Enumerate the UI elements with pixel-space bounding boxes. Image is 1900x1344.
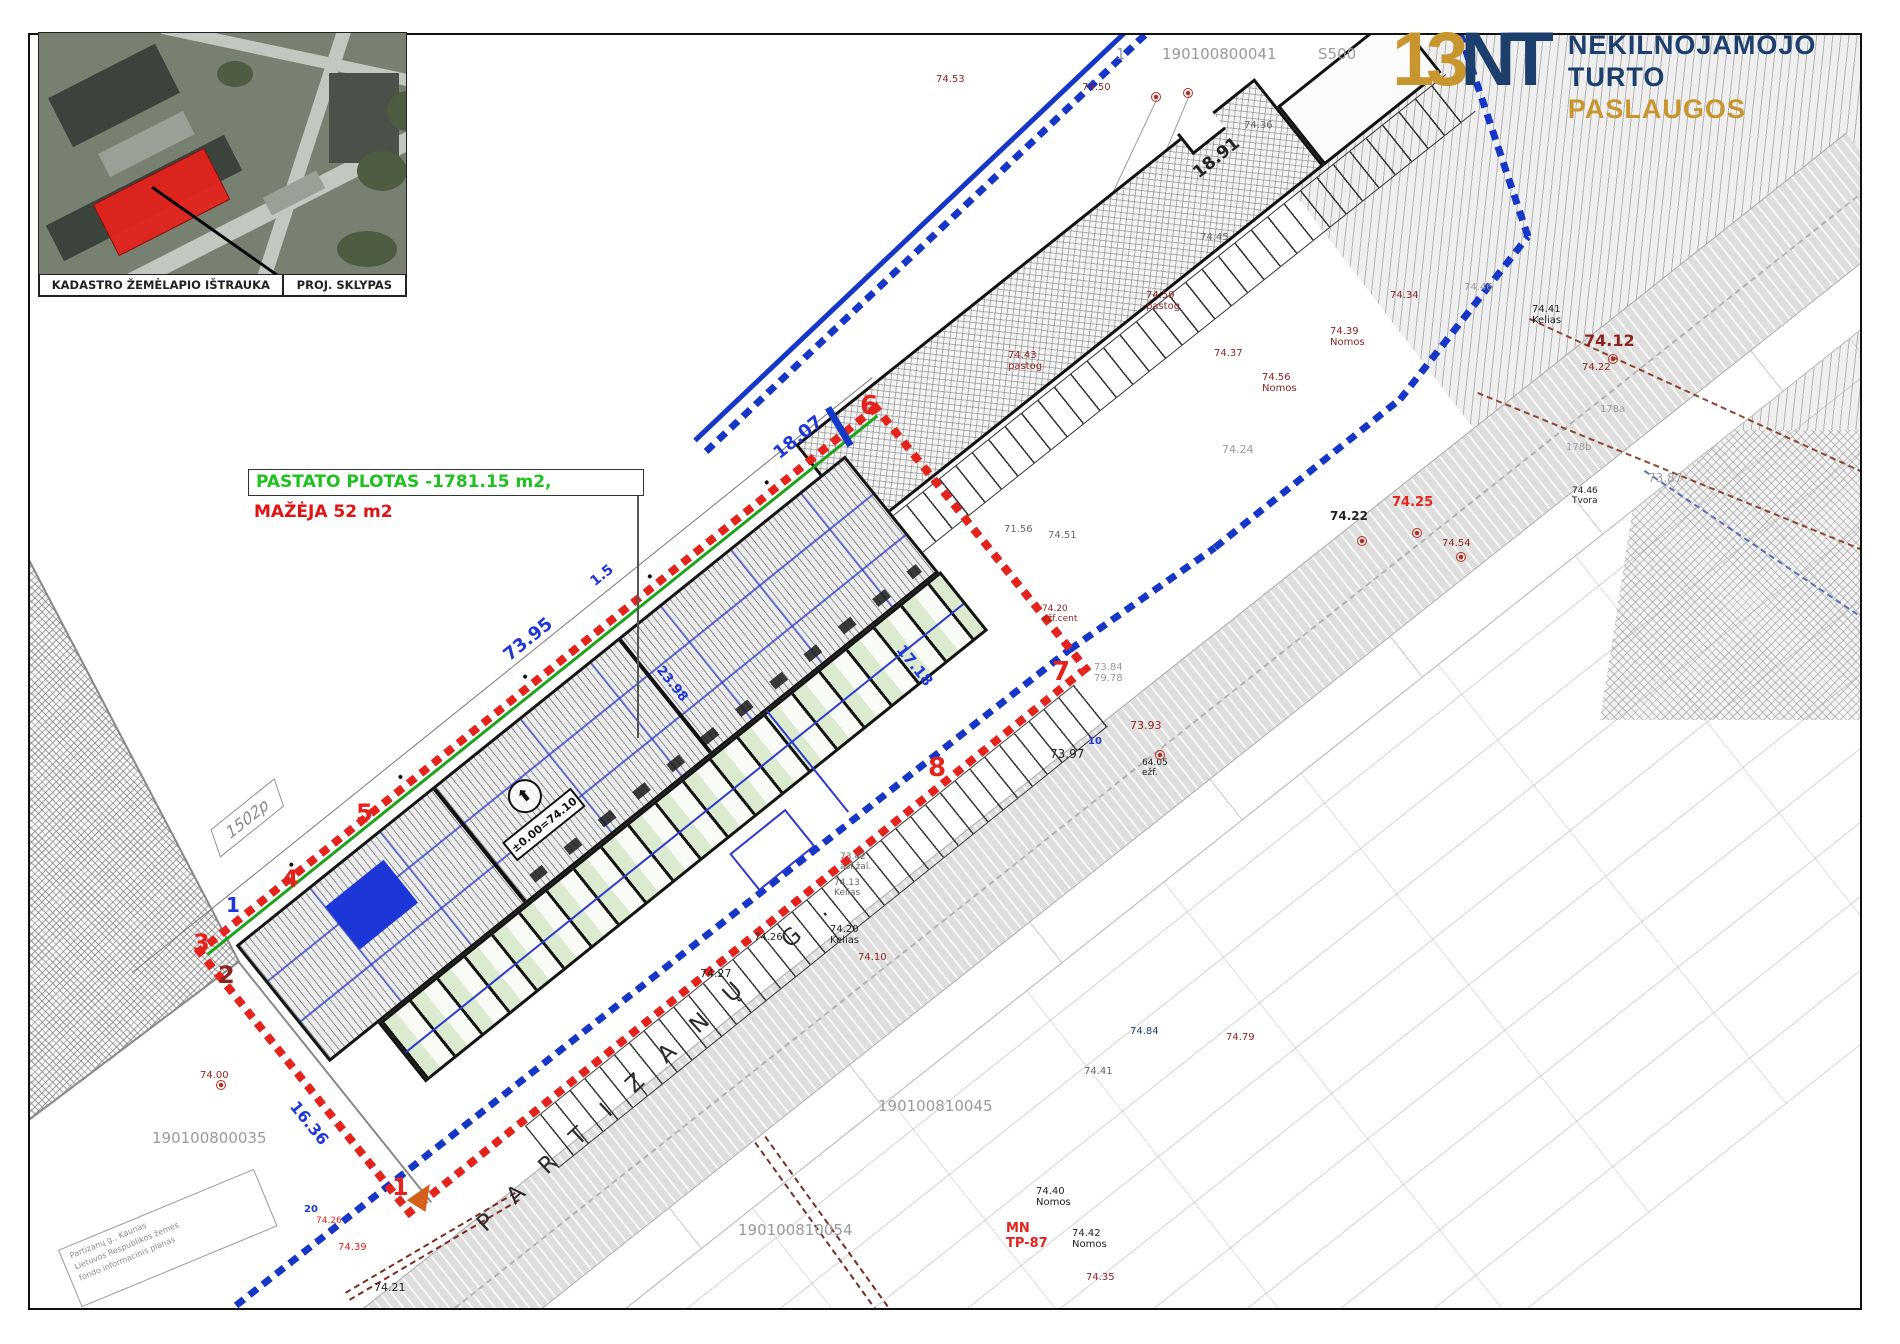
logo-word-line1: NEKILNOJAMOJO <box>1568 30 1817 62</box>
logo-mark-13: 13 <box>1392 24 1461 96</box>
photo-trees <box>357 151 406 191</box>
logo-word-line2: TURTO <box>1568 62 1817 94</box>
company-logo: 13 NT NEKILNOJAMOJO TURTO PASLAUGOS <box>1392 24 1816 126</box>
cadastral-site-plan-sheet: 1502p <box>0 0 1900 1344</box>
inset-caption-right: PROJ. SKLYPAS <box>283 274 406 296</box>
satellite-photo <box>39 33 406 276</box>
inset-caption-left: KADASTRO ŽEMĖLAPIO IŠTRAUKA <box>39 274 283 296</box>
margin-cover <box>0 0 28 1344</box>
satellite-inset: KADASTRO ŽEMĖLAPIO IŠTRAUKA PROJ. SKLYPA… <box>38 32 407 297</box>
margin-cover <box>1862 0 1900 1344</box>
logo-mark-nt: NT <box>1461 24 1546 96</box>
logo-word-line3: PASLAUGOS <box>1568 94 1817 126</box>
photo-trees <box>217 61 253 87</box>
logo-wordmark: NEKILNOJAMOJO TURTO PASLAUGOS <box>1568 30 1817 126</box>
inset-captions: KADASTRO ŽEMĖLAPIO IŠTRAUKA PROJ. SKLYPA… <box>39 274 406 296</box>
margin-cover <box>0 1310 1900 1344</box>
photo-trees <box>337 231 397 267</box>
